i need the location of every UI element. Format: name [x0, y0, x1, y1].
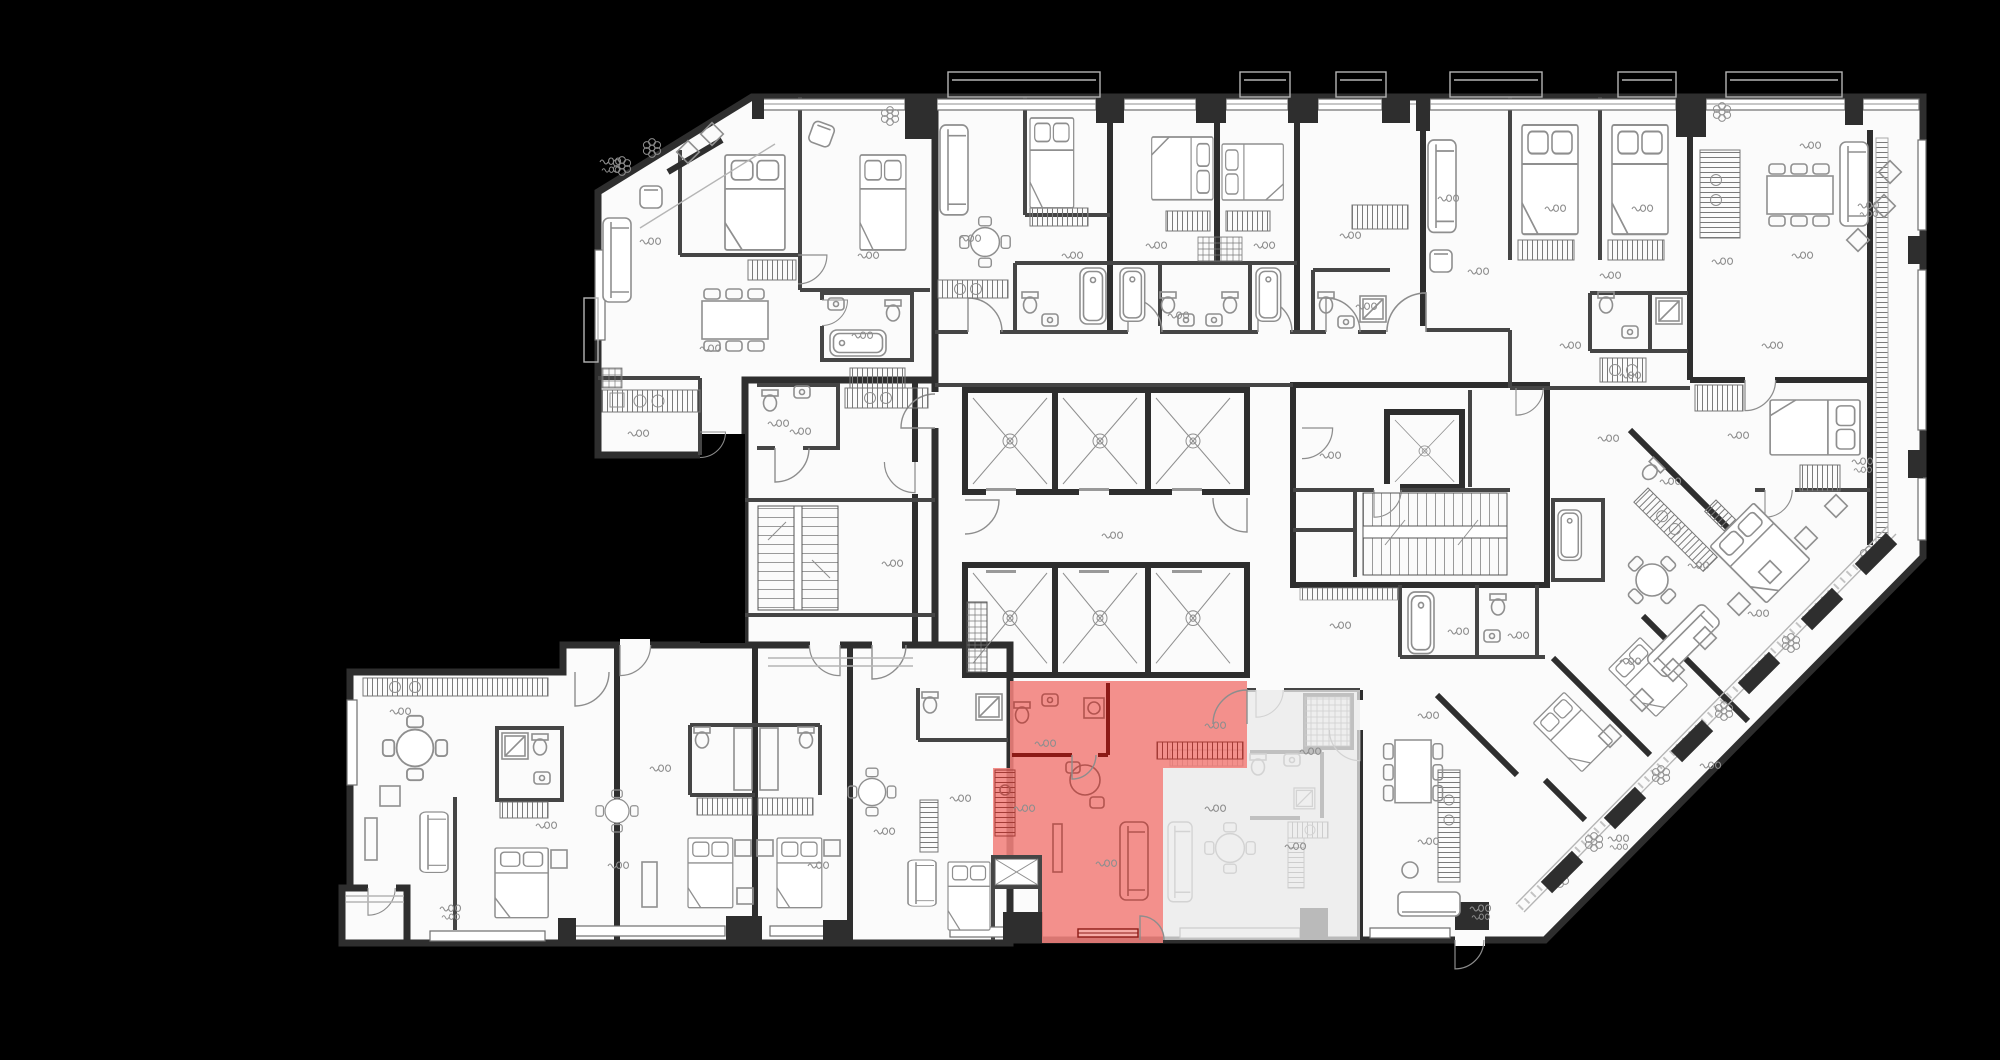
floorplan-canvas	[0, 0, 2000, 1060]
lightwell-void	[700, 434, 745, 643]
floorplan-svg	[0, 0, 2000, 1060]
